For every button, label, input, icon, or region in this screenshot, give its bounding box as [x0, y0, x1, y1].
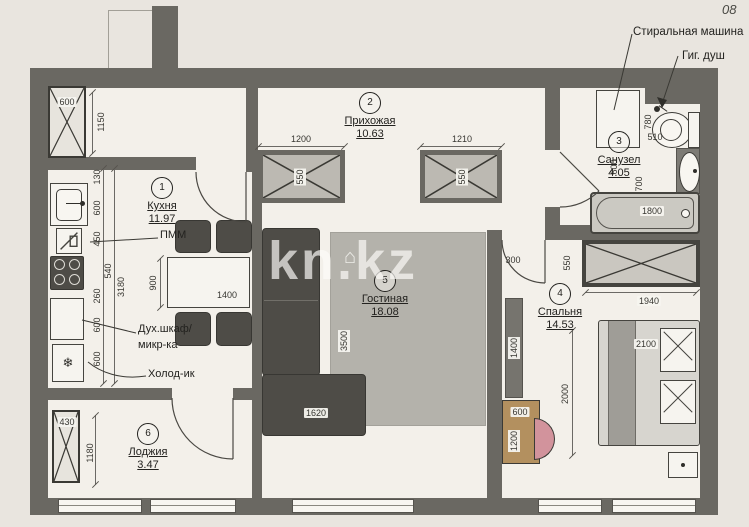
room-stamp-living: 5 Гостиная 18.08	[353, 270, 417, 318]
sofa-back-section	[262, 228, 320, 376]
dimension-line	[114, 168, 115, 384]
room-number: 2	[359, 92, 381, 114]
chair	[216, 312, 252, 346]
oven-label-line1: Дух.шкаф/	[138, 323, 192, 335]
wall-right	[700, 68, 718, 515]
dim-label: 430	[57, 417, 76, 427]
dim-label: 1150	[96, 112, 106, 131]
wall-kitchen-top	[46, 157, 196, 170]
dim-label: 1620	[304, 408, 328, 418]
chair	[216, 220, 252, 253]
room-area: 11.97	[131, 213, 193, 225]
room-name: Санузел	[588, 154, 650, 166]
room-stamp-loggia: 6 Лоджия 3.47	[118, 423, 178, 471]
window	[612, 499, 696, 513]
toilet-bowl-inner	[660, 119, 682, 141]
stove-burners-icon	[50, 256, 84, 290]
dishwasher-icon	[56, 228, 82, 254]
dim-label: 3180	[116, 277, 126, 297]
wall-kitchen-living	[252, 170, 262, 498]
oven-microwave-cabinet	[50, 298, 84, 340]
page-number: 08	[722, 2, 736, 17]
dimension-line	[160, 258, 161, 308]
kitchen-table	[167, 257, 250, 308]
floorplan-canvas: 08 Стиральная машина Гиг. душ ❄	[0, 0, 749, 527]
dim-label: 1800	[640, 206, 664, 216]
dim-label: 260	[92, 288, 102, 303]
pillow	[660, 380, 696, 424]
dim-label: 1210	[452, 134, 472, 144]
room-area: 18.08	[353, 306, 417, 318]
dim-label: 1180	[85, 443, 95, 462]
dim-label: 550	[294, 168, 306, 185]
dim-label: 550	[562, 255, 572, 270]
room-name: Прихожая	[338, 115, 402, 127]
wall-bath-left-upper	[545, 88, 560, 150]
dim-label: 450	[92, 231, 102, 246]
room-area: 3.47	[118, 459, 178, 471]
dim-label: 600	[92, 317, 102, 332]
bathroom-sink	[679, 152, 700, 192]
washing-machine-callout: Стиральная машина	[633, 26, 743, 38]
dim-label: 600	[92, 351, 102, 366]
bathtub-drain	[681, 209, 690, 218]
dim-label: 1200	[291, 134, 311, 144]
room-name: Кухня	[131, 200, 193, 212]
dim-label: 900	[148, 275, 158, 290]
room-stamp-bedroom: 4 Спальня 14.53	[528, 283, 592, 331]
window	[58, 499, 142, 513]
wall-bath-niche	[645, 88, 714, 104]
dim-label: 300	[505, 255, 520, 265]
dim-label: 1940	[637, 296, 661, 306]
window	[292, 499, 414, 513]
room-stamp-bath: 3 Санузел 4.05	[588, 131, 650, 179]
dimension-line	[572, 330, 573, 456]
room-stamp-kitchen: 1 Кухня 11.97	[131, 177, 193, 225]
dim-label: 2000	[560, 384, 570, 404]
faucet-spout	[66, 203, 82, 204]
wall-hall-kitchen	[246, 88, 258, 172]
dimension-line	[95, 415, 96, 485]
bedroom-wardrobe	[582, 240, 700, 287]
dim-label: 550	[456, 168, 468, 185]
dim-label: 130	[92, 169, 102, 184]
dim-label: 600	[57, 97, 76, 107]
room-number: 4	[549, 283, 571, 305]
hygienic-shower-callout: Гиг. душ	[682, 50, 725, 62]
room-area: 14.53	[528, 319, 592, 331]
dim-label: 1400	[217, 290, 237, 300]
dimension-line	[92, 92, 93, 154]
toilet-tank	[688, 112, 700, 148]
bed-blanket	[608, 321, 636, 445]
dimension-line	[420, 146, 502, 147]
dimension-line	[585, 292, 697, 293]
wall-top	[30, 68, 718, 88]
dim-label: 1400	[508, 337, 520, 359]
wall-left	[30, 68, 48, 515]
pillow	[660, 328, 696, 372]
wall-loggia	[46, 388, 172, 400]
window	[150, 499, 236, 513]
kitchen-sink-basin	[56, 189, 82, 221]
nightstand-handle	[681, 463, 685, 467]
wall-loggia-stub	[233, 388, 252, 400]
dim-label: 600	[510, 407, 529, 417]
window	[538, 499, 602, 513]
watermark-house-icon: ⌂	[344, 246, 356, 269]
fridge-label: Холод-ик	[148, 368, 195, 380]
room-number: 3	[608, 131, 630, 153]
dim-label: 600	[92, 200, 102, 215]
room-stamp-hall: 2 Прихожая 10.63	[338, 92, 402, 140]
sofa-chaise-section	[262, 374, 366, 436]
wall-living-bedroom	[487, 230, 502, 498]
wall	[152, 6, 178, 70]
exterior-wall-outline	[108, 10, 154, 70]
dishwasher-label: ПММ	[160, 229, 186, 241]
fridge: ❄	[52, 344, 84, 382]
sofa-cushion-line	[264, 300, 318, 301]
dim-label: 540	[103, 263, 113, 278]
sink-faucet-icon	[693, 169, 697, 173]
room-area: 10.63	[338, 128, 402, 140]
dim-label: 3500	[338, 330, 350, 352]
fridge-snowflake-icon: ❄	[63, 355, 74, 370]
room-number: 1	[151, 177, 173, 199]
room-number: 6	[137, 423, 159, 445]
room-name: Лоджия	[118, 446, 178, 458]
room-area: 4.05	[588, 167, 650, 179]
room-name: Гостиная	[353, 293, 417, 305]
room-name: Спальня	[528, 306, 592, 318]
room-number: 5	[374, 270, 396, 292]
dim-label: 2100	[634, 339, 658, 349]
oven-label-line2: микр-ка	[138, 339, 177, 351]
dim-label: 1200	[508, 430, 520, 452]
dimension-line	[258, 146, 345, 147]
dim-label: 780	[643, 114, 653, 129]
